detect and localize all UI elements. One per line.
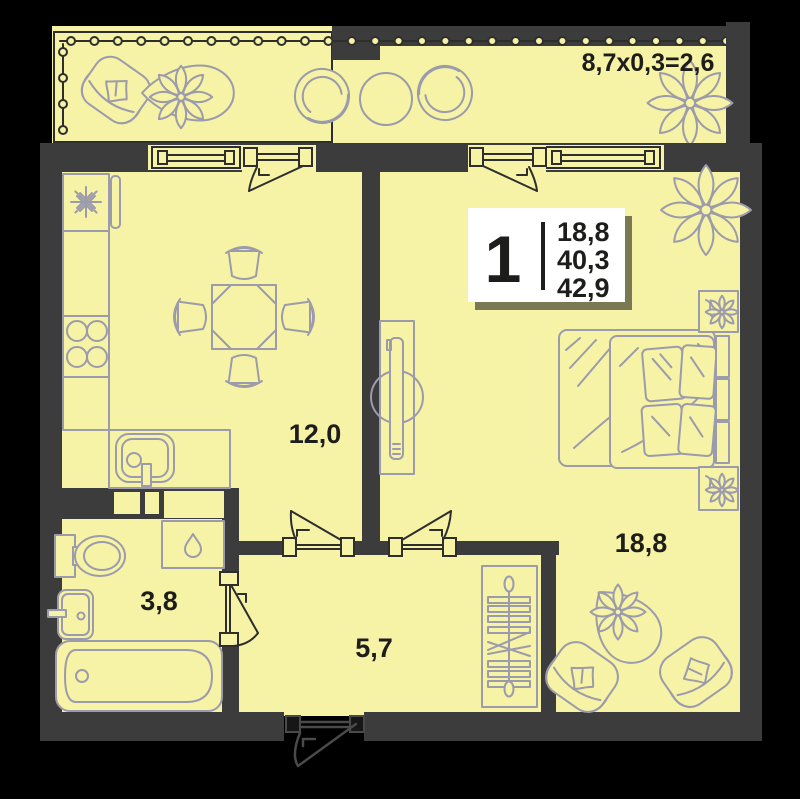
headboard: [716, 379, 729, 420]
bathtub: [56, 641, 222, 711]
bathroom-area-label: 3,8: [140, 586, 178, 616]
balcony-dimension-label: 8,7x0,3=2,6: [582, 49, 715, 77]
balcony-round-table: [360, 73, 412, 125]
info-area-apartment: 40,3: [557, 245, 610, 275]
info-rooms-count: 1: [485, 222, 522, 296]
bedroom-plant-icon: [661, 165, 751, 255]
snowflake-icon: [71, 187, 101, 217]
balcony: 8,7x0,3=2,6: [52, 22, 750, 146]
vent-shaft: [145, 492, 159, 514]
living-kitchen-area-label: 12,0: [289, 419, 342, 449]
headboard: [716, 336, 729, 377]
stove: [63, 316, 109, 377]
bed: [559, 330, 729, 468]
vent-shaft: [114, 492, 140, 514]
nightstand-top: [699, 291, 738, 332]
water-heater: [162, 521, 224, 568]
info-area-living: 18,8: [557, 217, 610, 247]
window-right: [544, 145, 664, 170]
hallway-area-label: 5,7: [355, 633, 393, 663]
floor-plan: 8,7x0,3=2,6: [0, 0, 800, 799]
toilet: [55, 535, 125, 577]
headboard: [716, 422, 729, 463]
pillow: [679, 345, 717, 399]
info-box: 1 18,8 40,3 42,9: [468, 208, 632, 310]
kitchen-counter: [63, 231, 109, 316]
wardrobe: [482, 566, 537, 707]
balcony-pouf-flower-icon: [150, 66, 213, 129]
bedroom-pouf-flower-icon: [591, 585, 646, 640]
kitchen-counter: [63, 377, 109, 430]
fridge-door: [111, 176, 120, 228]
nightstand-bottom: [699, 467, 738, 510]
pillow: [678, 404, 716, 457]
kitchen-sink: [116, 434, 174, 486]
info-area-total: 42,9: [557, 273, 610, 303]
bedroom-area-label: 18,8: [615, 528, 668, 558]
window-left: [148, 145, 244, 170]
vent-shaft: [164, 491, 224, 518]
